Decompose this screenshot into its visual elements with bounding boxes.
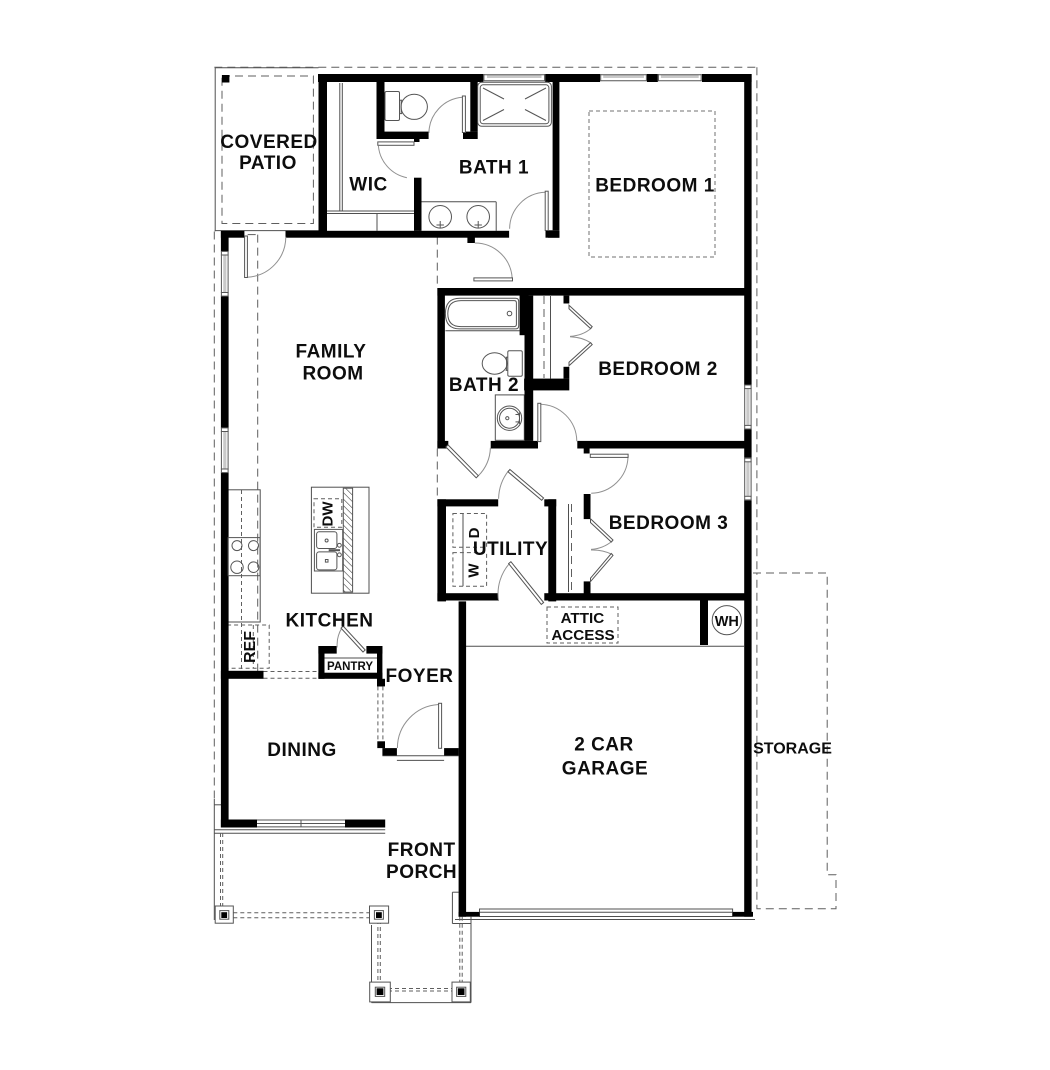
svg-text:GARAGE: GARAGE — [562, 759, 648, 780]
svg-text:D: D — [466, 527, 483, 538]
svg-text:FAMILY: FAMILY — [296, 342, 367, 363]
svg-text:PANTRY: PANTRY — [327, 661, 373, 673]
svg-text:DINING: DINING — [267, 740, 337, 761]
svg-text:COVERED: COVERED — [220, 132, 317, 153]
svg-text:STORAGE: STORAGE — [753, 741, 832, 758]
svg-text:DW: DW — [320, 501, 337, 527]
svg-text:BEDROOM 3: BEDROOM 3 — [609, 513, 729, 534]
svg-text:WH: WH — [715, 614, 739, 630]
svg-text:FRONT: FRONT — [388, 840, 456, 861]
svg-text:PATIO: PATIO — [239, 153, 297, 174]
svg-text:REF: REF — [242, 631, 259, 663]
svg-text:UTILITY: UTILITY — [473, 539, 548, 560]
svg-text:ATTIC: ATTIC — [561, 610, 605, 627]
svg-text:KITCHEN: KITCHEN — [286, 611, 374, 632]
svg-text:BEDROOM 1: BEDROOM 1 — [595, 176, 715, 197]
svg-text:ROOM: ROOM — [302, 364, 363, 385]
svg-text:FOYER: FOYER — [386, 666, 454, 687]
svg-text:ACCESS: ACCESS — [551, 627, 614, 644]
svg-text:WIC: WIC — [349, 175, 387, 196]
svg-text:2 CAR: 2 CAR — [574, 735, 634, 756]
svg-text:W: W — [466, 563, 483, 578]
svg-text:PORCH: PORCH — [386, 862, 457, 883]
svg-text:BEDROOM 2: BEDROOM 2 — [598, 359, 718, 380]
svg-text:BATH 2: BATH 2 — [449, 375, 519, 396]
svg-text:BATH 1: BATH 1 — [459, 158, 529, 179]
